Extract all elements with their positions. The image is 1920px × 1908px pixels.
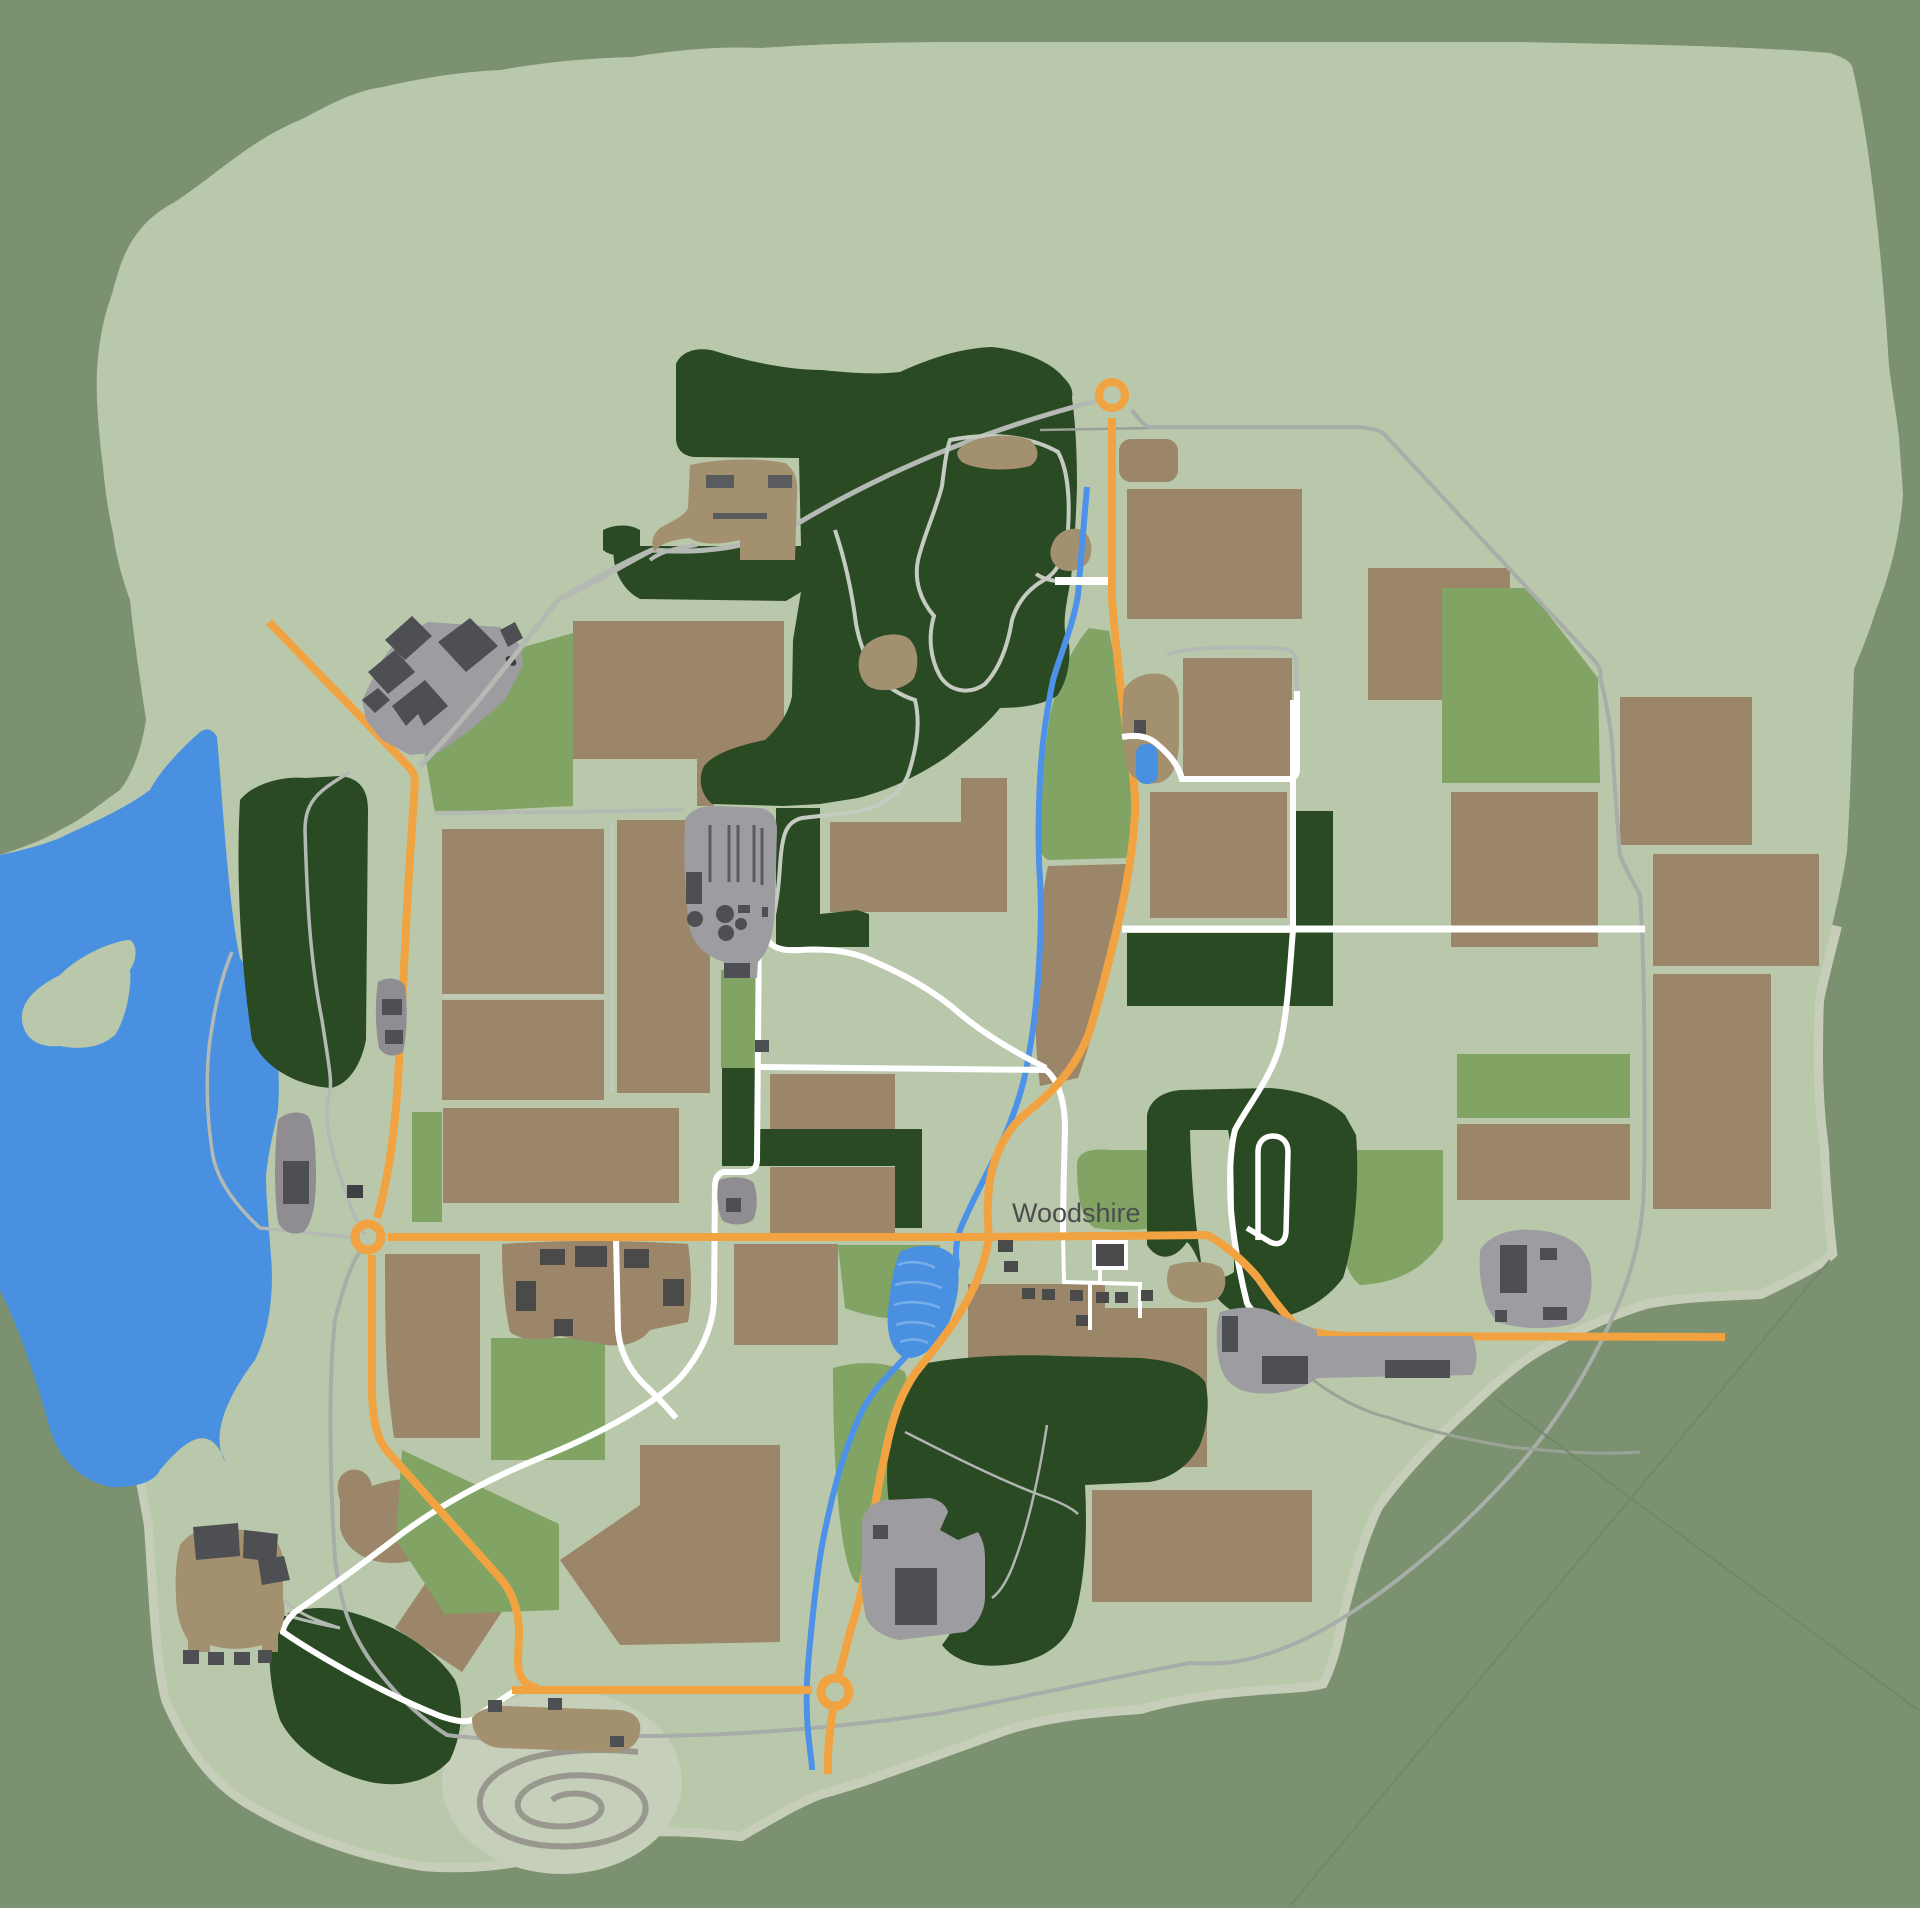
- svg-text:Woodshire: Woodshire: [1012, 1198, 1141, 1228]
